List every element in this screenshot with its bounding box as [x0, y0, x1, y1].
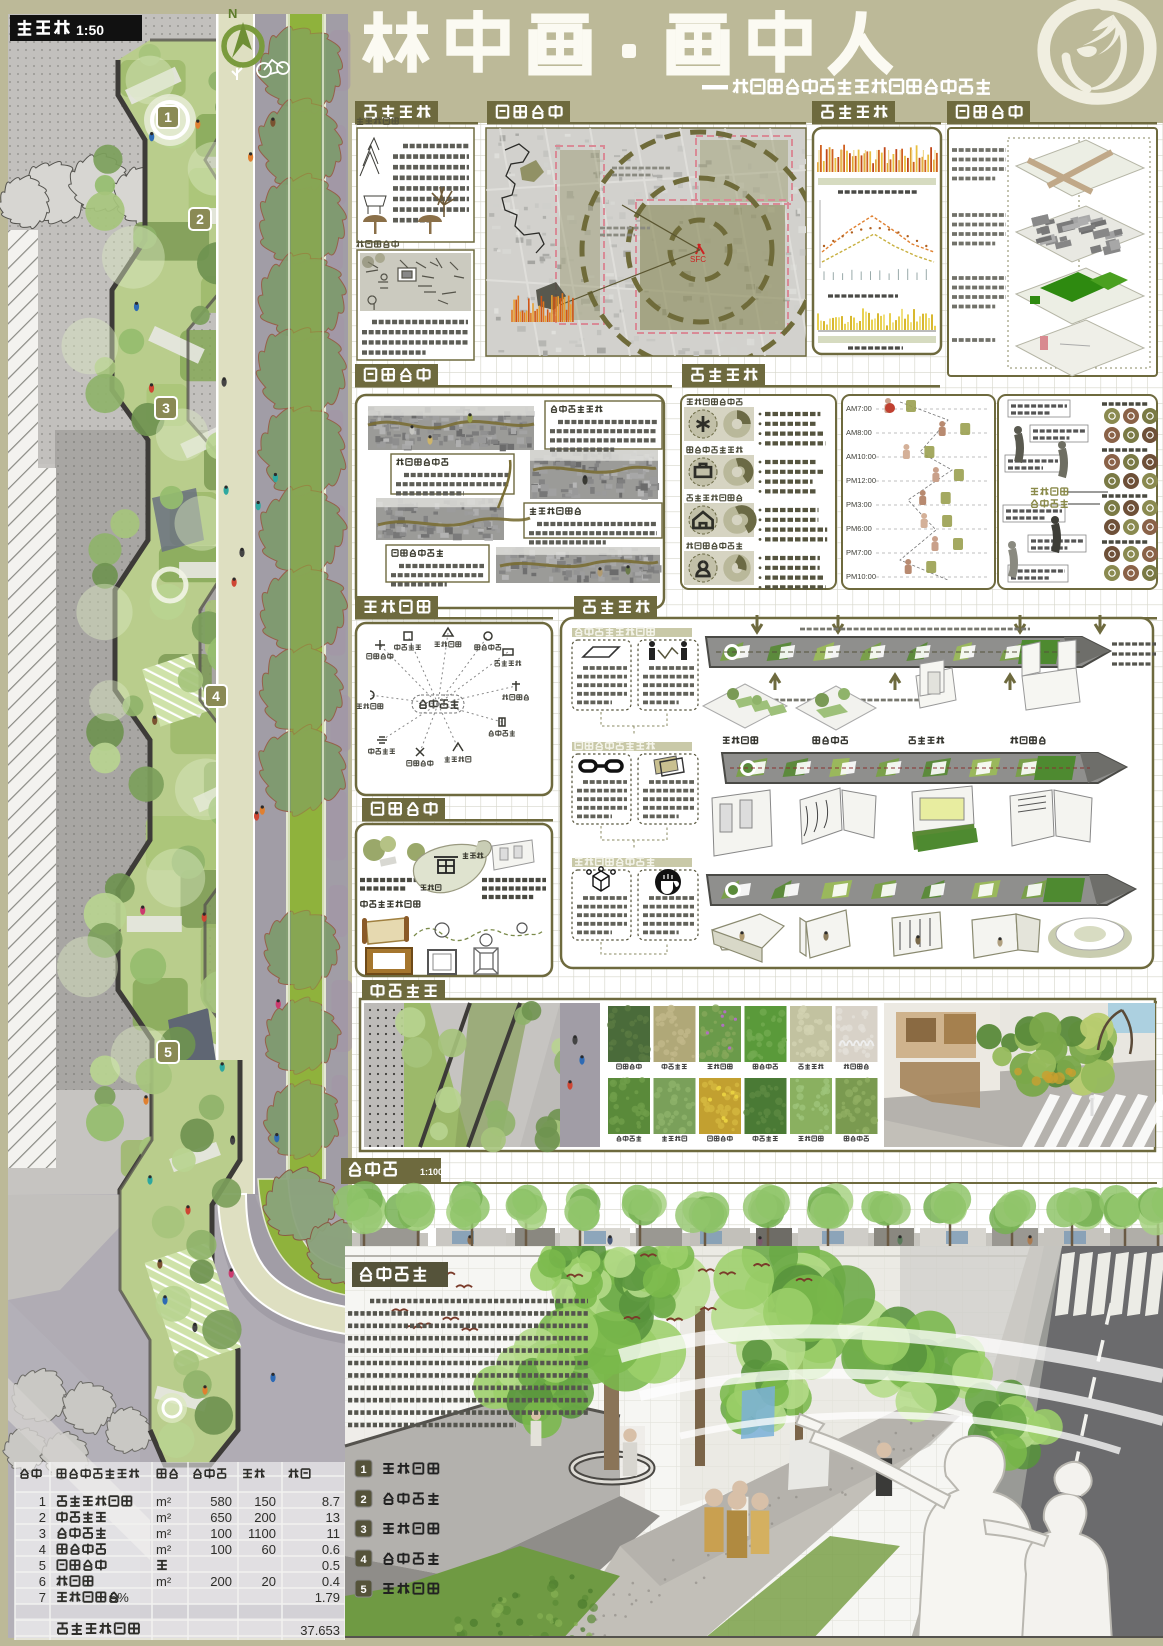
svg-text:200: 200 [254, 1510, 276, 1525]
svg-text:37.653: 37.653 [300, 1623, 340, 1638]
svg-text:2: 2 [39, 1510, 46, 1525]
svg-text:0.5: 0.5 [322, 1558, 340, 1573]
svg-text:0.4: 0.4 [322, 1574, 340, 1589]
svg-text:4: 4 [360, 1554, 367, 1566]
svg-text:8.7: 8.7 [322, 1494, 340, 1509]
svg-text:5: 5 [39, 1558, 46, 1573]
svg-text:20: 20 [262, 1574, 276, 1589]
svg-text:150: 150 [254, 1494, 276, 1509]
svg-text:5: 5 [360, 1584, 366, 1596]
svg-text:6: 6 [39, 1574, 46, 1589]
svg-text:1100: 1100 [248, 1526, 276, 1541]
svg-text:60: 60 [262, 1542, 276, 1557]
svg-text:13: 13 [326, 1510, 340, 1525]
svg-text:11: 11 [327, 1526, 341, 1541]
svg-text:3: 3 [360, 1524, 366, 1536]
svg-text:m²: m² [156, 1542, 172, 1557]
svg-text:100: 100 [210, 1526, 232, 1541]
svg-text:2: 2 [360, 1494, 366, 1506]
svg-text:3: 3 [39, 1526, 46, 1541]
svg-text:m²: m² [156, 1574, 172, 1589]
svg-text:1: 1 [360, 1464, 366, 1476]
svg-text:650: 650 [210, 1510, 232, 1525]
svg-text:200: 200 [210, 1574, 232, 1589]
svg-text:1.79: 1.79 [315, 1590, 340, 1605]
svg-text:1: 1 [39, 1494, 46, 1509]
svg-text:7: 7 [39, 1590, 46, 1605]
svg-text:580: 580 [210, 1494, 232, 1509]
svg-text:m²: m² [156, 1526, 172, 1541]
svg-text:100: 100 [210, 1542, 232, 1557]
svg-text:5%: 5% [110, 1590, 129, 1605]
svg-text:4: 4 [39, 1542, 46, 1557]
svg-text:m²: m² [156, 1510, 172, 1525]
svg-text:m²: m² [156, 1494, 172, 1509]
svg-text:0.6: 0.6 [322, 1542, 340, 1557]
